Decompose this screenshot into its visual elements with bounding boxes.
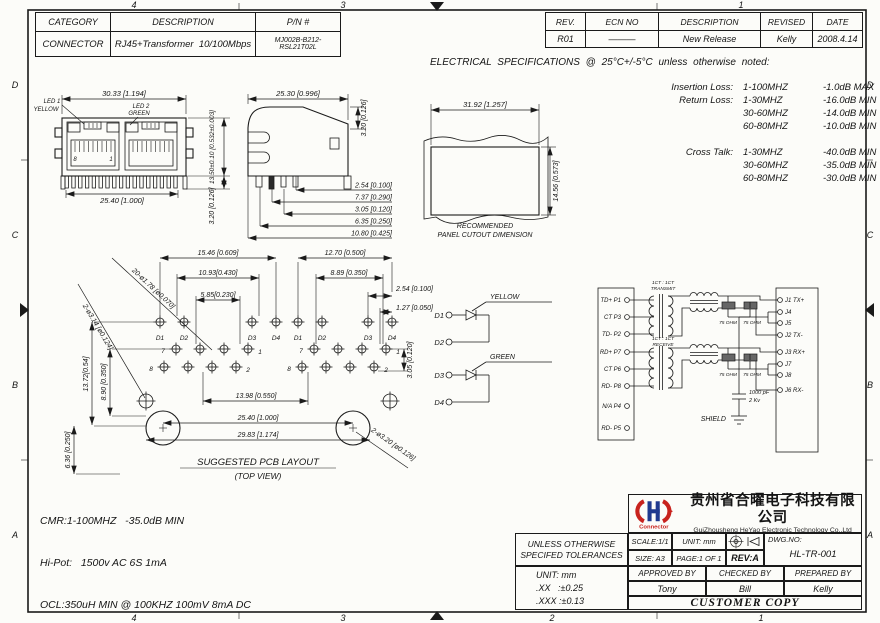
pcb-extension-lines [76, 262, 408, 474]
dwg-label: DWG.NO: [765, 534, 861, 544]
panel-cutout-caption: RECOMMENDED [457, 223, 513, 230]
company-box: Connector 贵州省合曜电子科技有限公司 GuiZhousheng HeY… [628, 494, 862, 533]
prepared-by-label: PREPARED BY [784, 566, 862, 581]
tolerance-line: SPECIFED TOLERANCES [520, 550, 622, 561]
spec-value: -10.0dB MIN [823, 120, 876, 133]
spec-freq: 60-80MHZ [743, 120, 823, 133]
svg-text:7: 7 [299, 348, 303, 355]
svg-text:13.98 [0.550]: 13.98 [0.550] [236, 393, 278, 400]
dim-label: 31.92 [1.257] [463, 100, 508, 109]
part-table-header: DESCRIPTION [111, 13, 256, 32]
pcb-layout-view: D1 D2 D3 D4 D1 D2 D3 D4 7 1 8 2 7 1 8 2 … [65, 250, 434, 481]
side-view: 25.30 [0.996] 3.20 [0.126] 2.54 [0.100] … [248, 89, 393, 238]
tolerance-xxx: .XXX :±0.13 [536, 595, 584, 608]
spec-label [645, 172, 743, 185]
svg-text:1: 1 [396, 349, 400, 356]
spec-row: 30-60MHZ -35.0dB MIN [645, 159, 876, 172]
note-line: OCL:350uH MIN @ 100KHZ 100mV 8mA DC [40, 598, 372, 612]
svg-text:RD- P8: RD- P8 [601, 384, 621, 390]
svg-text:RD- P5: RD- P5 [601, 426, 621, 432]
dim-label: 7.37 [0.290] [355, 195, 393, 202]
dim-label: 10.80 [0.425] [351, 231, 393, 238]
spec-label: Return Loss: [645, 94, 743, 107]
zone-label: 1 [758, 613, 763, 623]
svg-text:D3: D3 [248, 335, 257, 342]
size-cell: SIZE: A3 [628, 550, 672, 566]
rev-value: R01 [546, 31, 586, 48]
front-view: 8 1 LED 1 YELLOW LED 2 GREEN 30.33 [1.19… [33, 89, 230, 224]
rev-ecn: ——— [586, 31, 659, 48]
spec-freq: 30-60MHZ [743, 159, 823, 172]
schematic-left-pins: TD+ P1 CT P3 TD- P2 RD+ P7 CT P6 RD- P8 … [600, 298, 630, 432]
panel-cutout-view: 31.92 [1.257] 14.56 [0.573] RECOMMENDED … [424, 100, 560, 239]
unit-tolerance-box: UNIT: mm .XX :±0.25 .XXX :±0.13 [515, 566, 628, 610]
pcb-dim-lines [74, 258, 408, 474]
svg-text:RECEIVE: RECEIVE [652, 342, 674, 348]
svg-text:TD- P2: TD- P2 [602, 332, 622, 338]
part-table-header: CATEGORY [36, 13, 111, 32]
tolerance-line: UNLESS OTHERWISE [528, 539, 616, 550]
zone-label: B [12, 380, 18, 390]
pin-number: 8 [73, 157, 77, 163]
logo-text: Connector [639, 524, 669, 530]
rev-table-header: REV. [546, 13, 586, 31]
pcb-caption: SUGGESTED PCB LAYOUT [197, 457, 320, 468]
rev-cell: REV:A [726, 550, 764, 566]
svg-text:J1 TX+: J1 TX+ [784, 298, 805, 304]
electrical-specs-title: ELECTRICAL SPECIFICATIONS @ 25°C+/-5°C u… [430, 57, 870, 68]
rev-table-header: REVISED [761, 13, 813, 31]
dim-label: 25.30 [0.996] [275, 89, 321, 98]
led2-color-label: GREEN [128, 111, 150, 117]
dim-label: 14.56 [0.573] [553, 160, 560, 202]
svg-text:3.05 [0.120]: 3.05 [0.120] [407, 340, 414, 378]
spec-label: Cross Talk: [645, 146, 743, 159]
pin-number: 1 [109, 157, 112, 163]
svg-text:N/A P4: N/A P4 [602, 404, 621, 410]
svg-text:10.93[0.430]: 10.93[0.430] [199, 270, 239, 277]
dim-label: 3.05 [0.120] [355, 207, 393, 214]
svg-text:J7: J7 [784, 362, 792, 368]
zone-label: C [867, 230, 874, 240]
scale-cell: SCALE:1/1 [628, 533, 672, 550]
svg-text:CT P6: CT P6 [604, 367, 622, 373]
pcb-dim-labels: 15.46 [0.609] 12.70 [0.500] 10.93[0.430]… [65, 250, 434, 468]
transformer-schematic: TD+ P1 CT P3 TD- P2 RD+ P7 CT P6 RD- P8 … [598, 280, 818, 452]
checked-by-value: Bill [706, 581, 784, 596]
svg-text:75 OHM: 75 OHM [719, 372, 737, 378]
spec-freq: 1-30MHZ [743, 146, 823, 159]
part-description: RJ45+Transformer 10/100Mbps [111, 32, 256, 57]
led-pin-label: D1 [434, 311, 444, 320]
unit-cell: UNIT: mm [672, 533, 726, 550]
spec-row: Cross Talk: 1-30MHZ -40.0dB MIN [645, 146, 876, 159]
led-circuit: D1 D2 YELLOW D3 D4 GREEN [434, 294, 552, 407]
tolerance-note: UNLESS OTHERWISE SPECIFED TOLERANCES [515, 533, 628, 566]
rev-table-header: DATE [813, 13, 863, 31]
zone-label: 4 [131, 0, 136, 10]
svg-text:CT P3: CT P3 [604, 315, 622, 321]
zone-label: 1 [738, 0, 743, 10]
svg-text:8.90 [0.350]: 8.90 [0.350] [101, 362, 108, 400]
dim-label: 3.20 [0.126] [361, 98, 368, 136]
spec-freq: 1-100MHZ [743, 81, 823, 94]
svg-text:D1: D1 [294, 335, 303, 342]
svg-text:75 OHM: 75 OHM [719, 320, 737, 326]
spec-value: -35.0dB MIN [823, 159, 876, 172]
notes-block: CMR:1-100MHZ -35.0dB MIN Hi-Pot: 1500v A… [40, 486, 372, 623]
part-category: CONNECTOR [36, 32, 111, 57]
dim-label: 2.54 [0.100] [354, 183, 393, 190]
company-logo: Connector [633, 495, 680, 532]
spec-freq: 30-60MHZ [743, 107, 823, 120]
rev-revised-by: Kelly [761, 31, 813, 48]
spec-value: -30.0dB MIN [823, 172, 876, 185]
svg-text:2.54 [0.100]: 2.54 [0.100] [395, 286, 434, 293]
part-table: CATEGORY DESCRIPTION P/N # CONNECTOR RJ4… [35, 12, 341, 57]
svg-text:2: 2 [245, 367, 250, 374]
dim-label: 6.35 [0.250] [355, 219, 393, 226]
spec-freq: 60-80MHZ [743, 172, 823, 185]
dwg-number: HL-TR-001 [765, 544, 861, 565]
svg-text:1: 1 [258, 349, 262, 356]
prepared-by-value: Kelly [784, 581, 862, 596]
spec-label [645, 120, 743, 133]
pcb-pads [137, 316, 400, 446]
svg-text:75 OHM: 75 OHM [743, 372, 761, 378]
part-number: MJ002B-B212-RSL21T02L [256, 32, 341, 57]
svg-text:15.46 [0.609]: 15.46 [0.609] [198, 250, 240, 257]
dim-label: 25.40 [1.000] [99, 196, 145, 205]
svg-text:D4: D4 [388, 335, 397, 342]
unit-line: UNIT: mm [536, 569, 576, 582]
led-color-label: YELLOW [490, 294, 521, 301]
led-pin-label: D3 [434, 371, 444, 380]
svg-text:29.83 [1.174]: 29.83 [1.174] [237, 432, 280, 439]
schematic-right-pins: J1 TX+ J4 J5 J2 TX- J3 RX+ J7 J8 J6 RX- [778, 298, 806, 394]
rev-date: 2008.4.14 [813, 31, 863, 48]
svg-text:20-ø1.78 [ø0.070]: 20-ø1.78 [ø0.070] [130, 267, 177, 311]
shield-label: SHIELD [701, 416, 726, 423]
led1-label: LED 1 [44, 99, 61, 105]
svg-text:1CT : 1CT: 1CT : 1CT [652, 280, 675, 286]
zone-label: A [866, 530, 873, 540]
svg-text:8: 8 [149, 366, 153, 373]
svg-text:13.72[0.54]: 13.72[0.54] [83, 355, 90, 391]
customer-copy-banner: CUSTOMER COPY [628, 596, 862, 610]
zone-label: 3 [340, 0, 345, 10]
spec-value: -1.0dB MAX [823, 81, 874, 94]
svg-text:J2 TX-: J2 TX- [784, 333, 803, 339]
spec-freq: 1-30MHZ [743, 94, 823, 107]
approved-by-label: APPROVED BY [628, 566, 706, 581]
svg-text:J6 RX-: J6 RX- [784, 388, 803, 394]
rx-transformer: 1CT : 1CT RECEIVE 75 OHM 75 OHM [630, 336, 778, 390]
svg-text:J4: J4 [784, 310, 792, 316]
approved-by-value: Tony [628, 581, 706, 596]
rev-table-header: DESCRIPTION [659, 13, 761, 31]
svg-text:TD+ P1: TD+ P1 [600, 298, 621, 304]
svg-text:8.89 [0.350]: 8.89 [0.350] [331, 270, 369, 277]
zone-label: B [867, 380, 873, 390]
spec-label [645, 107, 743, 120]
svg-text:D4: D4 [272, 335, 281, 342]
svg-text:2: 2 [383, 367, 388, 374]
svg-text:J8: J8 [784, 373, 792, 379]
svg-text:D2: D2 [180, 335, 189, 342]
svg-text:7: 7 [161, 348, 165, 355]
electrical-specs: Insertion Loss: 1-100MHZ -1.0dB MAX Retu… [645, 81, 876, 185]
checked-by-label: CHECKED BY [706, 566, 784, 581]
svg-text:RD+ P7: RD+ P7 [600, 350, 622, 356]
svg-text:TRANSMIT: TRANSMIT [651, 286, 677, 292]
zone-label: C [12, 230, 19, 240]
revision-table: REV. ECN NO DESCRIPTION REVISED DATE R01… [545, 12, 863, 48]
pcb-caption: (TOP VIEW) [235, 471, 282, 481]
spec-row: Insertion Loss: 1-100MHZ -1.0dB MAX [645, 81, 876, 94]
svg-text:5.85[0.230]: 5.85[0.230] [200, 292, 236, 299]
note-line: CMR:1-100MHZ -35.0dB MIN [40, 514, 372, 528]
zone-label: D [12, 80, 19, 90]
spec-value: -40.0dB MIN [823, 146, 876, 159]
dim-label: 3.20 [0.126] [209, 186, 216, 224]
third-angle-projection-icon [728, 534, 762, 549]
led2-label: LED 2 [133, 104, 150, 110]
spec-label: Insertion Loss: [645, 81, 743, 94]
tolerance-xx: .XX :±0.25 [536, 582, 583, 595]
led-pin-label: D2 [434, 338, 444, 347]
tx-transformer: 1CT : 1CT TRANSMIT 75 OHM 75 OHM [630, 280, 778, 338]
dwg-no-cell: DWG.NO: HL-TR-001 [764, 533, 862, 566]
svg-text:75 OHM: 75 OHM [743, 320, 761, 326]
dim-label: 13.50±0.10 [0.532±0.003] [209, 110, 216, 184]
part-table-header: P/N # [256, 13, 341, 32]
spec-value: -16.0dB MIN [823, 94, 876, 107]
cap-value: 1000 pF [749, 390, 770, 396]
svg-text:D3: D3 [364, 335, 373, 342]
spec-row: 60-80MHZ -30.0dB MIN [645, 172, 876, 185]
pcb-pad-labels: D1 D2 D3 D4 D1 D2 D3 D4 7 1 8 2 7 1 8 2 [149, 335, 400, 374]
contact-hatch [75, 141, 169, 152]
rev-description: New Release [659, 31, 761, 48]
page-cell: PAGE:1 OF 1 [672, 550, 726, 566]
drawing-sheet: 4 3 1 4 3 2 1 D C B A D C B A 8 1 [0, 0, 880, 623]
spec-value: -14.0dB MIN [823, 107, 876, 120]
zone-label: A [11, 530, 18, 540]
spec-row: 60-80MHZ -10.0dB MIN [645, 120, 876, 133]
led1-color-label: YELLOW [33, 107, 59, 113]
led-color-label: GREEN [490, 354, 516, 361]
svg-text:25.40 [1.000]: 25.40 [1.000] [237, 415, 280, 422]
svg-text:1CT : 1CT: 1CT : 1CT [652, 336, 675, 342]
svg-text:12.70 [0.500]: 12.70 [0.500] [325, 250, 367, 257]
spec-label [645, 159, 743, 172]
company-name-cn: 贵州省合曜电子科技有限公司 [684, 493, 861, 527]
zone-label: 2 [548, 613, 554, 623]
svg-text:J5: J5 [784, 321, 792, 327]
svg-text:D1: D1 [156, 335, 165, 342]
spec-row: 30-60MHZ -14.0dB MIN [645, 107, 876, 120]
svg-text:8: 8 [287, 366, 291, 373]
svg-text:2-ø3.14 [ø0.124]: 2-ø3.14 [ø0.124] [80, 302, 114, 352]
svg-text:1.27 [0.050]: 1.27 [0.050] [396, 305, 434, 312]
spec-row: Return Loss: 1-30MHZ -16.0dB MIN [645, 94, 876, 107]
dim-label: 30.33 [1.194] [102, 89, 147, 98]
svg-text:D2: D2 [318, 335, 327, 342]
note-line: Hi-Pot: 1500v AC 6S 1mA [40, 556, 372, 570]
shield-cap: 1000 pF 2 Kv SHIELD [701, 317, 770, 424]
svg-text:6.36 [0.250]: 6.36 [0.250] [65, 430, 72, 468]
cap-rating: 2 Kv [748, 398, 761, 404]
rev-table-header: ECN NO [586, 13, 659, 31]
led-pin-label: D4 [434, 398, 444, 407]
projection-symbol-cell [726, 533, 764, 550]
svg-text:J3 RX+: J3 RX+ [784, 350, 805, 356]
panel-cutout-caption: PANEL CUTOUT DIMENSION [438, 232, 534, 239]
